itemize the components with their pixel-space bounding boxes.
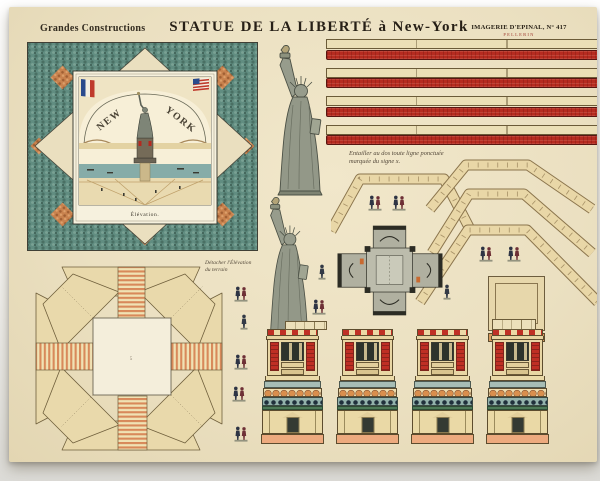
colonnade [279,340,306,375]
brick-band [326,78,597,88]
brick-pylon-left [345,342,354,371]
dotted-blue-band [412,397,473,406]
brick-pylon-right [381,342,390,371]
upper-blue-band [339,381,396,388]
brick-pylon-left [495,342,504,371]
masonry-strip-piece [326,68,597,89]
dotted-blue-band [337,397,398,406]
platform-fold-line [495,283,538,324]
bystander-figures [507,246,521,262]
brick-pylon-left [420,342,429,371]
elevation-terrain-piece: NEW YORK [27,42,258,251]
masonry-strip-piece [326,39,597,60]
sill-band [281,362,304,368]
sill-band [506,362,529,368]
glue-tab [285,321,327,330]
brick-pylon-right [456,342,465,371]
bystander-figures [479,246,493,262]
loggia-section [492,340,543,376]
pedestal-face-piece [487,329,548,449]
battlement-band [267,329,318,336]
series-label: Grandes Constructions [40,23,145,34]
stone-band [326,96,597,106]
stone-band [326,68,597,78]
bystander-figures [232,386,246,402]
base-wall [262,410,323,434]
bystander-figures [234,426,248,442]
pedestal-face-piece [412,329,473,449]
bead-moulding [338,388,397,397]
colonnade-windows [506,342,529,361]
pedestal-top-cross-piece [335,224,445,317]
salmon-plinth [261,434,324,444]
colonnade-windows [431,342,454,361]
base-wall [337,410,398,434]
sill-band-2 [356,369,379,375]
bystander-figures [312,299,326,315]
print-sheet: Grandes Constructions STATUE DE LA LIBER… [9,7,597,462]
french-flag [81,79,95,97]
sill-band-2 [506,369,529,375]
upper-blue-band [489,381,546,388]
sill-band [431,362,454,368]
statue-figure-back [271,45,329,197]
harbor-scene: NEW YORK [79,77,211,205]
elevation-caption: Élévation. [131,210,160,218]
doorway [361,417,374,433]
glue-tab [492,319,536,330]
doorway [436,417,449,433]
colonnade [429,340,456,375]
page-title: STATUE DE LA LIBERTÉ à New-York [149,19,489,36]
bystander-figures [368,195,382,211]
doorway [286,417,299,433]
bystander-figure [443,284,451,300]
publisher-block: IMAGERIE D'EPINAL, N° 417 PELLERIN [464,24,574,37]
colonnade-windows [356,342,379,361]
doorway [511,417,524,433]
salmon-plinth [336,434,399,444]
bystander-figures [234,354,248,370]
upper-blue-band [414,381,471,388]
masonry-strip-piece [326,96,597,117]
terrain-star-base-piece: 5 [35,266,223,451]
base-wall [412,410,473,434]
us-flag [193,77,209,91]
bead-moulding [263,388,322,397]
pedestal-face-piece [262,329,323,449]
salmon-plinth [411,434,474,444]
brick-pylon-left [270,342,279,371]
colonnade-windows [281,342,304,361]
statue-figure-front [261,197,317,337]
masonry-strip-piece [326,125,597,146]
bead-moulding [413,388,472,397]
bystander-figures [234,286,248,302]
publisher-name: IMAGERIE D'EPINAL, N° 417 [464,24,574,31]
stone-band [326,39,597,49]
loggia-section [417,340,468,376]
publisher-sub: PELLERIN [464,32,574,37]
dotted-blue-band [262,397,323,406]
colonnade [354,340,381,375]
upper-blue-band [264,381,321,388]
sill-band [356,362,379,368]
stone-band [326,125,597,135]
base-wall [487,410,548,434]
dotted-blue-band [487,397,548,406]
brick-band [326,135,597,145]
pedestal-face-piece [337,329,398,449]
bystander-figure [240,314,248,330]
pedestal-faces-row [262,329,548,449]
salmon-plinth [486,434,549,444]
brick-pylon-right [306,342,315,371]
brick-band [326,107,597,117]
masonry-strips [326,39,597,153]
battlement-band [342,329,393,336]
loggia-section [342,340,393,376]
sill-band-2 [431,369,454,375]
brick-pylon-right [531,342,540,371]
colonnade [504,340,531,375]
bead-moulding [488,388,547,397]
battlement-band [417,329,468,336]
brick-band [326,50,597,60]
bystander-figure [318,264,326,280]
bystander-figures [392,195,406,211]
loggia-section [267,340,318,376]
battlement-band [492,329,543,336]
sill-band-2 [281,369,304,375]
